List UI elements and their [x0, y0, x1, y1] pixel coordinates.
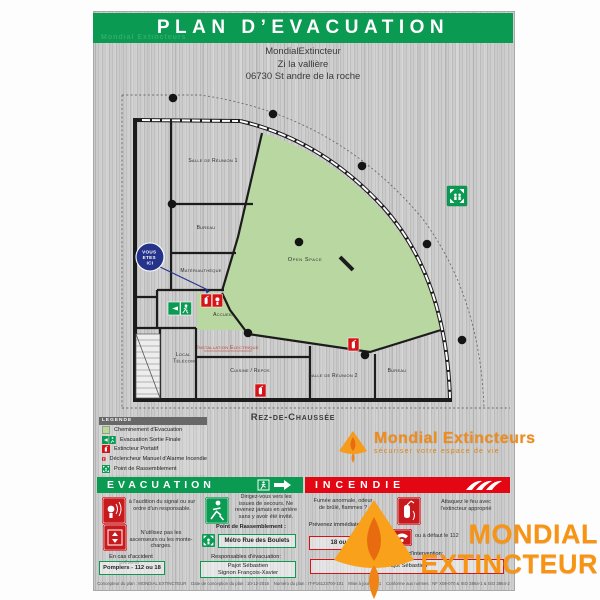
brand-name: Mondial Extincteurs [374, 430, 536, 447]
responsable-2: Signon François-Xavier [201, 570, 295, 577]
legend-header: LEGENDE [99, 417, 207, 425]
legend-item-alarm: Déclencheur Manuel d'Alarme Incendie [99, 454, 207, 464]
incendie-header: INCENDIE [305, 477, 510, 493]
no-elevator-icon [103, 524, 127, 551]
brand-flame-icon [336, 430, 370, 464]
staircase [136, 334, 160, 398]
room-label-open-space: Open Space [288, 257, 322, 263]
manual-alarm-icon [102, 455, 106, 463]
legend-item-path: Cheminement d'Evacuation [99, 425, 207, 435]
legend-panel: LEGENDE Cheminement d'Evacuation Evacuat… [99, 417, 207, 475]
alarm-signal-icon [102, 497, 126, 524]
evacuation-title: EVACUATION [97, 479, 257, 491]
floor-label: Rez-de-Chaussée [233, 412, 353, 423]
evacuation-instruction-2: Dirigez-vous vers les issues de secours.… [232, 494, 300, 520]
evacuation-panel: EVACUATION à l'audition du signal ou sur… [97, 477, 303, 579]
room-label-bureau-1: Bureau [197, 225, 216, 231]
room-label-cuisine-repos: Cuisine / Repos [230, 368, 270, 374]
assembly-point-icon [447, 186, 467, 206]
room-label-installation-electrique: Installation Electrique [197, 345, 259, 351]
exit-running-man-arrow-icon [257, 479, 297, 491]
watermark-line-1: MONDIAL [420, 520, 598, 550]
assembly-point-label: Point de Rassemblement : [205, 524, 297, 530]
extinguisher-icon-cuisine [255, 384, 266, 397]
evacuation-responsables-label: Responsables d'évacuation: [200, 554, 292, 560]
flames-icon [464, 479, 504, 491]
evacuation-path-swatch [102, 426, 110, 434]
room-label-accueil: Accueil [213, 312, 233, 318]
running-man-icon [205, 497, 229, 524]
evacuation-instruction-3: N'utilisez pas les ascenseurs ou les mon… [129, 530, 193, 550]
evacuation-responsables-box: Pajot Sébastien Signon François-Xavier [200, 561, 296, 578]
room-label-salle-reunion-1: Salle de Réunion 1 [188, 158, 237, 164]
watermark-flame-icon [327, 500, 422, 600]
incendie-attack-text: Attaquez le feu avec l'extincteur approp… [435, 499, 497, 512]
exit-sign-icon [168, 302, 192, 315]
responsable-1: Pajot Sébastien [201, 563, 295, 570]
evacuation-header: EVACUATION [97, 477, 303, 493]
watermark-line-2: EXTINCTEUR [420, 550, 598, 580]
assembly-point-value: Métro Rue des Boulets [218, 534, 296, 548]
legend-item-exit: Evacuation Sortie Finale [99, 435, 207, 445]
room-label-bureau-2: Bureau [388, 368, 407, 374]
legend-item-extinguisher: Extincteur Portatif [99, 444, 207, 454]
room-label-salle-reunion-2: Salle de Réunion 2 [308, 373, 357, 379]
room-label-local-telecom: Local Télécom [173, 352, 195, 365]
exit-sign-icon [102, 436, 116, 444]
extinguisher-icon [102, 445, 110, 453]
assembly-point-icon [102, 465, 110, 473]
brand-tagline: sécuriser votre espace de vie [374, 448, 536, 455]
legend-item-assembly: Point de Rassemblement [99, 464, 207, 474]
evacuation-instruction-1: à l'audition du signal ou sur ordre d'un… [128, 499, 196, 512]
incendie-title: INCENDIE [305, 479, 464, 491]
room-label-materiautheque: Matériauthèque [180, 268, 221, 274]
accident-value: Pompiers - 112 ou 18 [99, 561, 165, 575]
assembly-point-icon [202, 534, 215, 547]
watermark-wordmark: MONDIAL EXTINCTEUR [420, 520, 598, 579]
plan-footer-note: Concepteur du plan : MONDIAL EXTINCTEUR … [97, 579, 510, 588]
brand-logo: Mondial Extincteurs sécuriser votre espa… [336, 430, 536, 464]
evacuation-path-area [197, 133, 441, 352]
extinguisher-icon-open-space [348, 338, 359, 351]
evacuation-plan-poster-page: Mondial Extincteurs PLAN D’EVACUATION Mo… [0, 0, 600, 600]
